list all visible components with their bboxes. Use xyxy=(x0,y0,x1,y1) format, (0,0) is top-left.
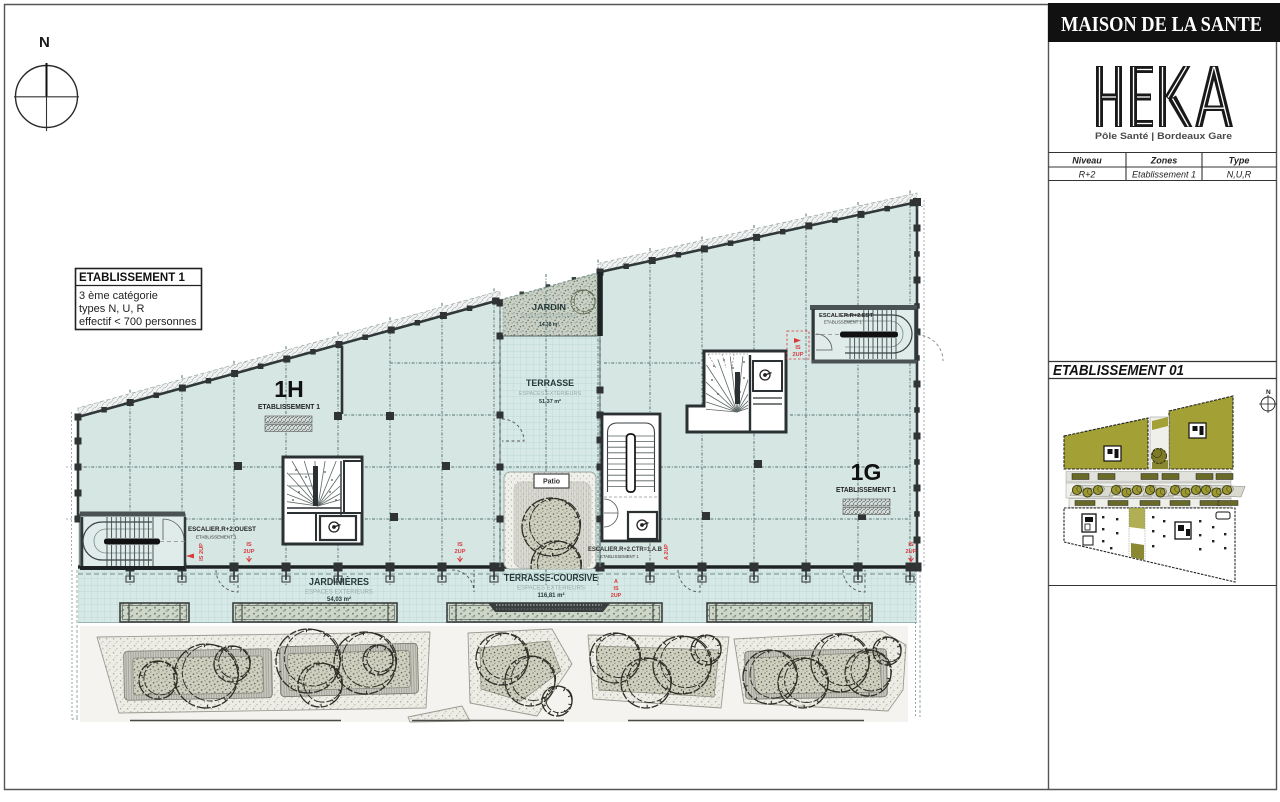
svg-text:54,03 m²: 54,03 m² xyxy=(327,596,351,603)
svg-text:IS: IS xyxy=(795,345,801,351)
svg-text:ETABLISSEMENT 1: ETABLISSEMENT 1 xyxy=(824,320,862,325)
svg-text:51,37 m²: 51,37 m² xyxy=(539,398,561,405)
svg-text:Patio: Patio xyxy=(543,479,560,486)
svg-text:ETABLISSEMENT 1: ETABLISSEMENT 1 xyxy=(836,487,896,494)
svg-text:MAISON DE LA SANTE: MAISON DE LA SANTE xyxy=(1061,12,1262,36)
svg-text:ETABLISSEMENT 01: ETABLISSEMENT 01 xyxy=(1053,363,1184,379)
svg-text:ESPACES EXTERIEURS: ESPACES EXTERIEURS xyxy=(305,590,373,596)
svg-text:R+2: R+2 xyxy=(1079,170,1096,180)
svg-text:2UP: 2UP xyxy=(455,549,466,555)
svg-text:N: N xyxy=(1266,389,1271,396)
svg-text:effectif < 700 personnes: effectif < 700 personnes xyxy=(79,316,197,328)
svg-text:Pôle Santé | Bordeaux Gare: Pôle Santé | Bordeaux Gare xyxy=(1095,131,1232,141)
svg-text:ESPACES EXTERIEURS: ESPACES EXTERIEURS xyxy=(519,391,582,397)
svg-text:ETABLISSEMENT 1: ETABLISSEMENT 1 xyxy=(258,404,320,411)
svg-text:ESPACES EXTERIEURS: ESPACES EXTERIEURS xyxy=(521,314,578,320)
svg-text:3 ème catégorie: 3 ème catégorie xyxy=(79,290,158,302)
svg-text:Type: Type xyxy=(1229,156,1250,166)
svg-text:ESCALIER.R+2.EST: ESCALIER.R+2.EST xyxy=(819,313,874,319)
svg-text:14,38 m²: 14,38 m² xyxy=(539,322,559,328)
svg-text:1G: 1G xyxy=(851,459,882,485)
svg-text:JARDIN: JARDIN xyxy=(532,302,566,312)
svg-text:Niveau: Niveau xyxy=(1072,156,1102,166)
svg-text:2UP: 2UP xyxy=(906,549,917,555)
svg-text:2UP: 2UP xyxy=(611,593,622,599)
svg-text:IS: IS xyxy=(246,542,252,548)
svg-text:types N, U, R: types N, U, R xyxy=(79,303,144,315)
svg-text:116,81 m²: 116,81 m² xyxy=(537,592,564,599)
svg-text:ETABLISSEMENT 1: ETABLISSEMENT 1 xyxy=(196,535,237,540)
svg-text:Zones: Zones xyxy=(1150,156,1178,166)
svg-text:TERRASSE: TERRASSE xyxy=(526,378,574,389)
svg-text:ESPACES EXTERIEURS: ESPACES EXTERIEURS xyxy=(517,586,585,592)
svg-text:2UP: 2UP xyxy=(244,549,255,555)
svg-text:ESCALIER.R+2.OUEST: ESCALIER.R+2.OUEST xyxy=(188,526,256,533)
svg-text:N,U,R: N,U,R xyxy=(1227,170,1252,180)
svg-text:IS: IS xyxy=(613,586,618,592)
svg-text:IS: IS xyxy=(457,542,463,548)
svg-text:A 2UP: A 2UP xyxy=(664,544,670,560)
svg-text:ETABLISSEMENT 1: ETABLISSEMENT 1 xyxy=(79,272,185,284)
svg-text:ESCALIER.R+2.CTR=1.A.B: ESCALIER.R+2.CTR=1.A.B xyxy=(588,546,662,553)
svg-text:ETABLISSEMENT 1: ETABLISSEMENT 1 xyxy=(600,554,639,559)
svg-text:2UP: 2UP xyxy=(793,352,804,358)
svg-text:1H: 1H xyxy=(274,376,303,402)
svg-text:N: N xyxy=(39,34,50,51)
svg-text:IS 2UP: IS 2UP xyxy=(199,543,205,561)
svg-text:A: A xyxy=(614,579,618,585)
svg-text:Etablissement 1: Etablissement 1 xyxy=(1132,170,1196,180)
svg-text:IS: IS xyxy=(908,542,914,548)
svg-text:TERRASSE-COURSIVE: TERRASSE-COURSIVE xyxy=(504,573,598,584)
